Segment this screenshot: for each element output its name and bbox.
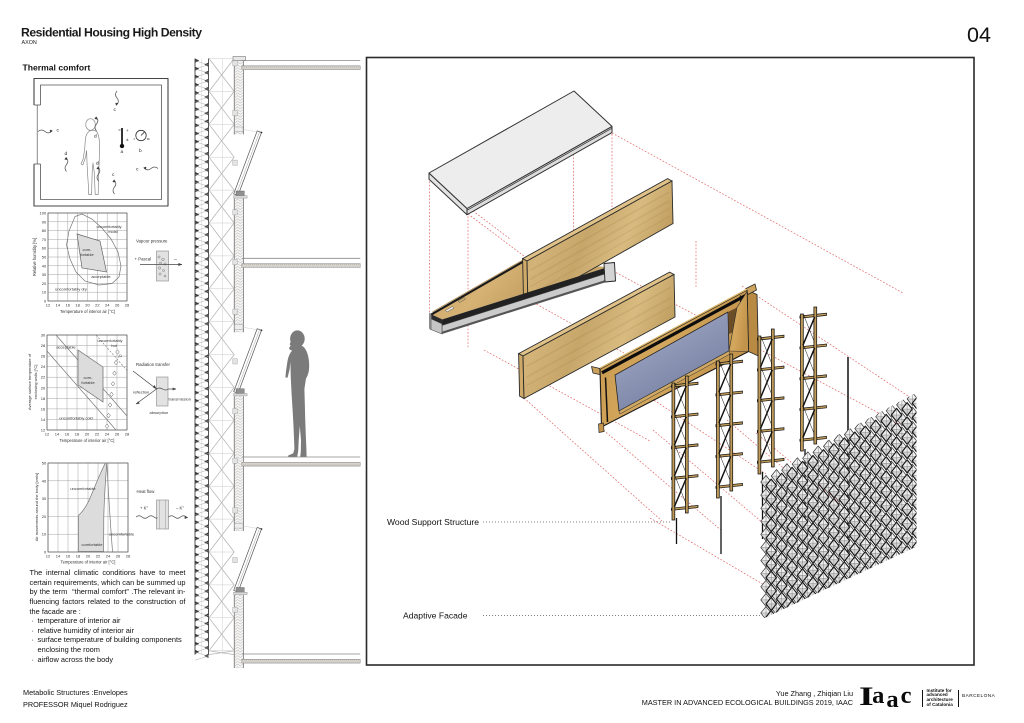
svg-text:24: 24: [105, 432, 110, 437]
svg-text:22: 22: [95, 303, 100, 308]
svg-text:22: 22: [41, 375, 46, 380]
svg-text:hot: hot: [111, 343, 117, 348]
svg-text:16: 16: [65, 432, 70, 437]
svg-text:18: 18: [75, 303, 80, 308]
svg-text:16: 16: [66, 554, 71, 559]
svg-text:Radiation transfer: Radiation transfer: [136, 362, 170, 367]
svg-text:04: 04: [967, 23, 991, 47]
svg-text:28: 28: [41, 343, 46, 348]
svg-text:28: 28: [125, 432, 130, 437]
svg-text:enclosing walls [°C]: enclosing walls [°C]: [33, 365, 38, 400]
svg-text:10: 10: [42, 532, 47, 537]
svg-text:12: 12: [46, 303, 51, 308]
svg-text:40: 40: [42, 478, 47, 483]
svg-text:moist: moist: [108, 229, 118, 234]
svg-text:14: 14: [55, 432, 60, 437]
svg-text:d: d: [65, 151, 68, 157]
svg-text:30: 30: [41, 333, 46, 338]
svg-text:d: d: [96, 161, 99, 167]
svg-text:18: 18: [76, 554, 81, 559]
svg-text:70: 70: [42, 237, 47, 242]
svg-text:24: 24: [41, 364, 46, 369]
svg-text:26: 26: [116, 554, 121, 559]
svg-text:50: 50: [42, 461, 47, 466]
svg-text:16: 16: [66, 303, 71, 308]
svg-text:absorption: absorption: [150, 410, 169, 415]
svg-text:Average surface temperature of: Average surface temperature of: [27, 353, 32, 410]
svg-text:Residential Housing High Densi: Residential Housing High Density: [21, 26, 202, 40]
svg-text:30: 30: [42, 496, 47, 501]
svg-text:uncomfortably dry: uncomfortably dry: [55, 287, 87, 292]
svg-text:b: b: [139, 148, 142, 154]
svg-text:Temperature of interior air [°: Temperature of interior air [°C]: [60, 309, 115, 314]
svg-text:acceptable: acceptable: [56, 345, 76, 350]
svg-text:fortable: fortable: [80, 252, 94, 257]
svg-text:60: 60: [42, 246, 47, 251]
svg-text:12: 12: [46, 554, 51, 559]
svg-text:28: 28: [126, 554, 131, 559]
svg-text:uncomfortably: uncomfortably: [97, 338, 122, 343]
svg-text:90: 90: [42, 219, 47, 224]
svg-text:20: 20: [85, 432, 90, 437]
svg-text:–: –: [174, 257, 177, 263]
svg-text:reflection: reflection: [133, 390, 149, 395]
svg-text:22: 22: [95, 432, 100, 437]
svg-text:Wood Support Structure: Wood Support Structure: [387, 517, 479, 527]
svg-text:Temperature of interior air [°: Temperature of interior air [°C]: [60, 438, 115, 443]
svg-text:14: 14: [56, 554, 61, 559]
svg-text:20: 20: [42, 281, 47, 286]
svg-text:– K°: – K°: [176, 506, 184, 511]
svg-text:80: 80: [42, 228, 47, 233]
svg-text:20: 20: [85, 303, 90, 308]
svg-text:+ Pascal: + Pascal: [135, 257, 152, 262]
svg-text:18: 18: [41, 396, 46, 401]
svg-text:20: 20: [86, 554, 91, 559]
svg-text:°C: °C: [117, 353, 124, 360]
svg-text:uncomfortable: uncomfortable: [70, 486, 96, 491]
svg-text:Air movements around the body: Air movements around the body [cm/s]: [34, 473, 39, 541]
svg-text:Temperature of interior air [°: Temperature of interior air [°C]: [61, 560, 116, 565]
svg-text:Vapour pressure: Vapour pressure: [136, 239, 168, 244]
svg-text:26: 26: [115, 303, 120, 308]
svg-text:d: d: [94, 134, 97, 140]
svg-text:26: 26: [41, 354, 46, 359]
svg-text:20: 20: [42, 514, 47, 519]
svg-text:Thermal comfort: Thermal comfort: [23, 63, 91, 73]
svg-text:+: +: [126, 128, 129, 133]
svg-text:a: a: [121, 150, 124, 155]
svg-text:100: 100: [40, 211, 47, 216]
svg-text:40: 40: [42, 263, 47, 268]
svg-text:uncomfortably cold: uncomfortably cold: [59, 416, 93, 421]
svg-text:14: 14: [41, 417, 46, 422]
svg-text:24: 24: [106, 554, 111, 559]
svg-text:30: 30: [42, 272, 47, 277]
svg-text:20: 20: [41, 385, 46, 390]
svg-text:+ K°: + K°: [140, 506, 148, 511]
svg-text:24: 24: [105, 303, 110, 308]
svg-text:26: 26: [115, 432, 120, 437]
svg-text:16: 16: [41, 406, 46, 411]
svg-text:10: 10: [42, 290, 47, 295]
svg-text:14: 14: [56, 303, 61, 308]
svg-text:Relative humidity [%]: Relative humidity [%]: [32, 238, 37, 276]
svg-text:transmission: transmission: [169, 397, 191, 402]
svg-text:Adaptive Facade: Adaptive Facade: [403, 611, 468, 621]
svg-text:uncomfortable: uncomfortable: [109, 532, 135, 537]
svg-text:18: 18: [75, 432, 80, 437]
svg-text:comfortable: comfortable: [82, 542, 104, 547]
svg-text:50: 50: [42, 255, 47, 260]
svg-text:22: 22: [96, 554, 101, 559]
svg-text:acceptable: acceptable: [91, 274, 111, 279]
svg-text:fortable: fortable: [81, 380, 95, 385]
svg-text:Heat flow: Heat flow: [137, 489, 156, 494]
svg-text:28: 28: [125, 303, 130, 308]
svg-text:12: 12: [45, 432, 50, 437]
svg-text:AXON: AXON: [22, 40, 37, 46]
